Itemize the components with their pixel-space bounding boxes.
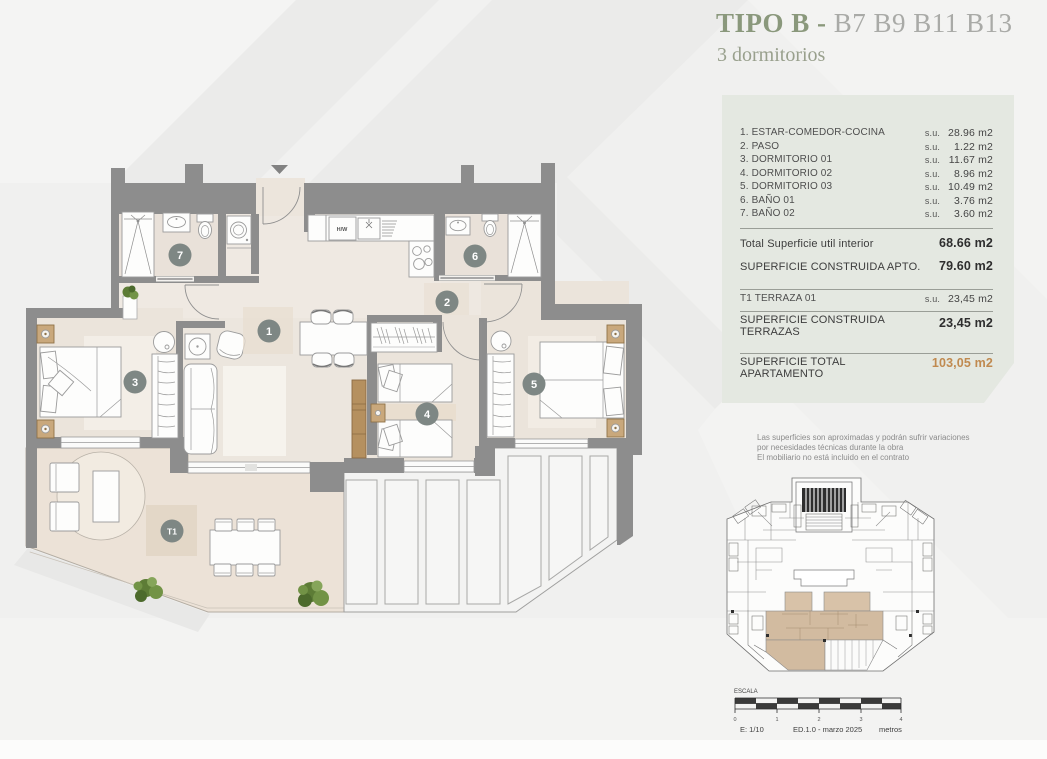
svg-text:T1: T1 <box>167 527 177 537</box>
svg-text:7: 7 <box>177 250 183 262</box>
svg-text:0: 0 <box>733 717 736 723</box>
svg-text:4: 4 <box>424 409 431 421</box>
svg-text:3: 3 <box>132 377 138 389</box>
svg-text:E: 1/10: E: 1/10 <box>740 725 764 734</box>
svg-text:2: 2 <box>444 297 450 309</box>
svg-text:1: 1 <box>775 717 778 723</box>
svg-text:4: 4 <box>899 717 902 723</box>
svg-text:1: 1 <box>266 326 272 338</box>
svg-text:5: 5 <box>531 379 537 391</box>
svg-text:2: 2 <box>817 717 820 723</box>
svg-text:ED.1.0 - marzo 2025: ED.1.0 - marzo 2025 <box>793 725 862 734</box>
svg-text:ESCALA: ESCALA <box>734 689 758 695</box>
svg-text:6: 6 <box>472 251 478 263</box>
svg-text:3: 3 <box>859 717 862 723</box>
svg-text:metros: metros <box>879 725 902 734</box>
svg-text:H/W: H/W <box>337 227 349 233</box>
